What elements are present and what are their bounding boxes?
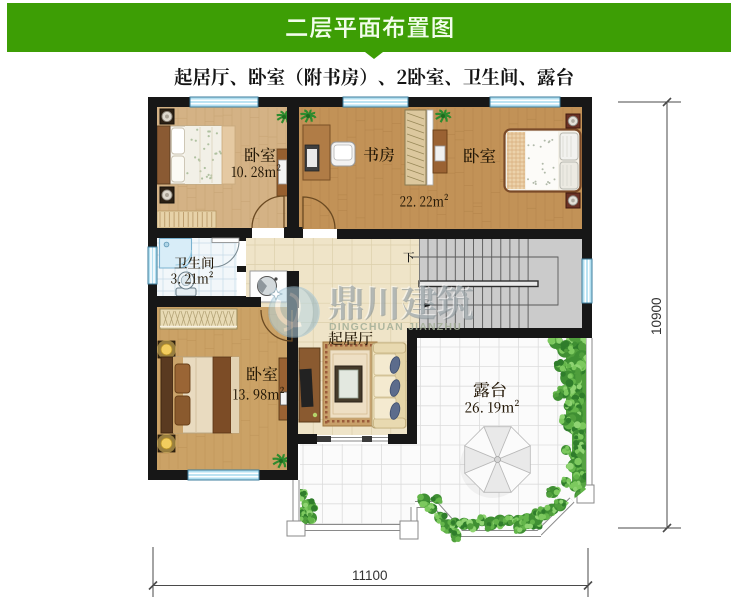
svg-text:DINGCHUAN JIANZHU: DINGCHUAN JIANZHU — [329, 321, 462, 333]
svg-text:11100: 11100 — [352, 568, 388, 583]
svg-text:10900: 10900 — [649, 297, 664, 335]
